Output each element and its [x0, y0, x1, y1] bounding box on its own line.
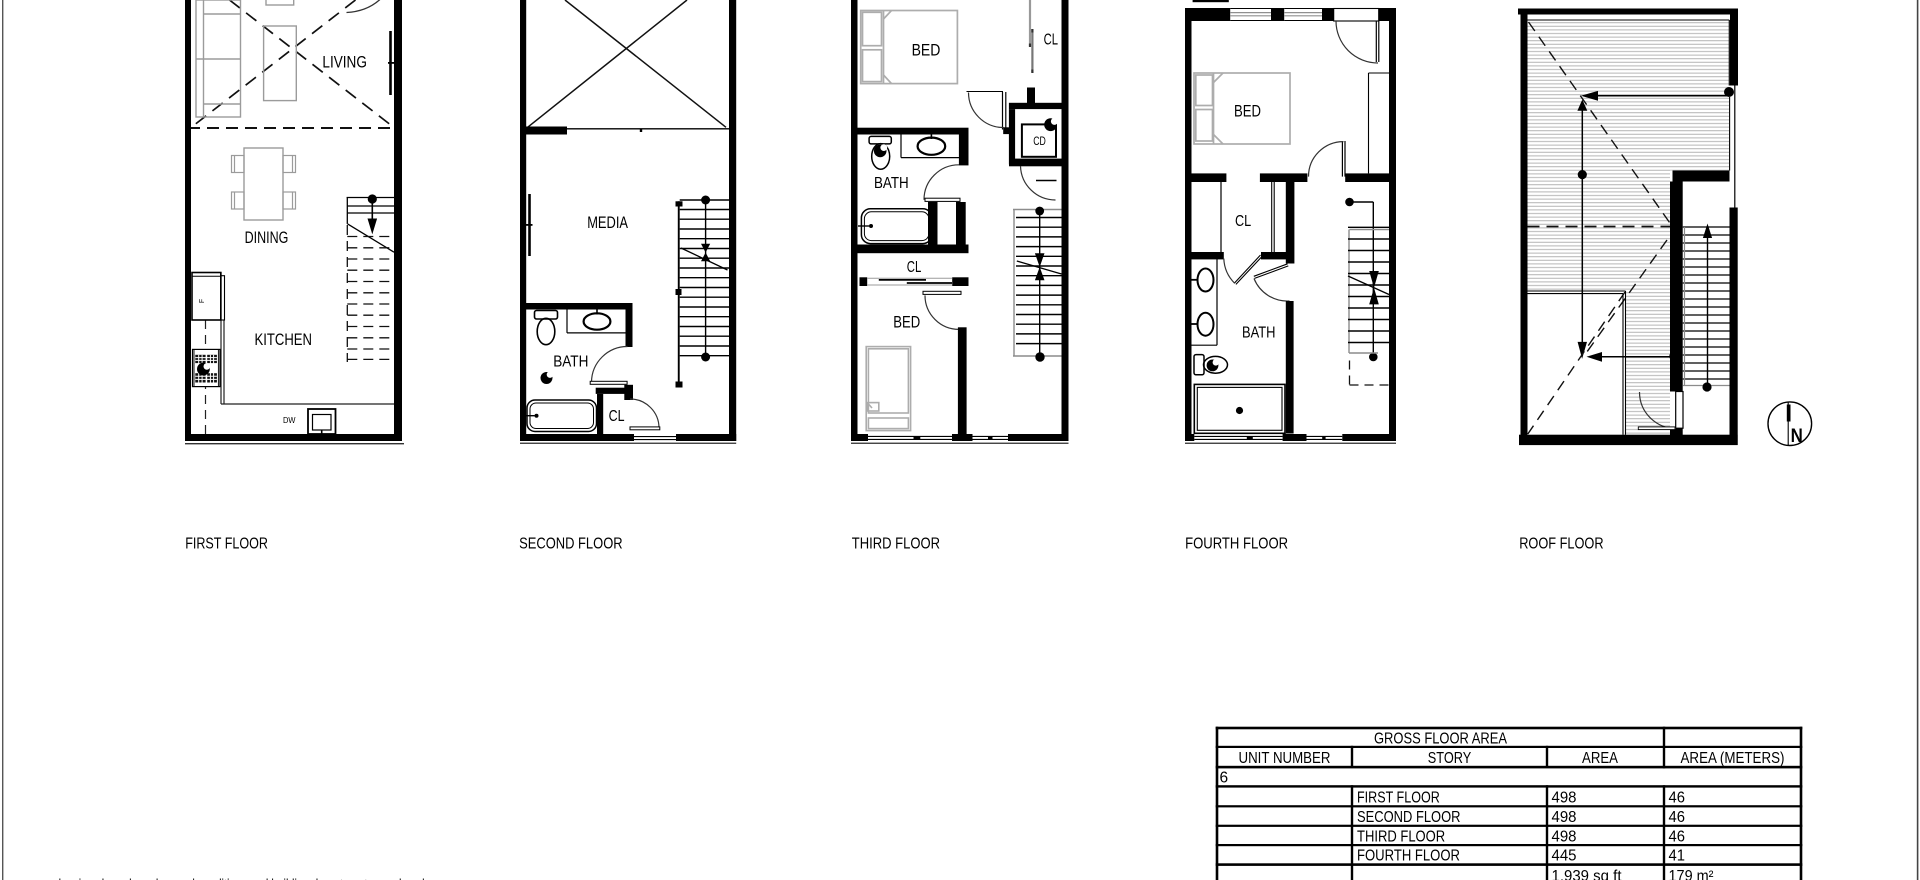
svg-text:BED: BED	[912, 41, 941, 59]
svg-text:THIRD FLOOR: THIRD FLOOR	[852, 535, 940, 552]
svg-text:AREA (METERS): AREA (METERS)	[1681, 750, 1785, 767]
svg-text:UNIT NUMBER: UNIT NUMBER	[1239, 750, 1331, 767]
svg-text:179 m²: 179 m²	[1669, 868, 1714, 880]
svg-text:DINING: DINING	[245, 229, 289, 247]
svg-text:46: 46	[1669, 809, 1686, 826]
svg-text:46: 46	[1669, 790, 1686, 807]
svg-text:CL: CL	[907, 259, 922, 276]
svg-text:MEDIA: MEDIA	[587, 214, 628, 232]
svg-text:498: 498	[1552, 828, 1577, 845]
svg-text:LIVING: LIVING	[322, 54, 367, 72]
svg-text:N: N	[1791, 425, 1803, 447]
svg-text:6: 6	[1220, 770, 1229, 787]
svg-text:STORY: STORY	[1428, 750, 1472, 767]
svg-text:FOURTH FLOOR: FOURTH FLOOR	[1185, 535, 1288, 552]
svg-text:FIRST FLOOR: FIRST FLOOR	[185, 535, 268, 552]
svg-text:445: 445	[1552, 848, 1577, 865]
svg-text:CL: CL	[1044, 32, 1059, 49]
svg-text:THIRD FLOOR: THIRD FLOOR	[1357, 828, 1445, 845]
svg-text:KITCHEN: KITCHEN	[255, 331, 313, 349]
svg-text:BATH: BATH	[553, 353, 588, 370]
svg-text:AREA: AREA	[1582, 750, 1619, 767]
svg-text:FOURTH FLOOR: FOURTH FLOOR	[1357, 848, 1460, 865]
svg-text:BATH: BATH	[1242, 324, 1276, 341]
svg-text:SECOND FLOOR: SECOND FLOOR	[1357, 809, 1461, 826]
svg-text:SECOND FLOOR: SECOND FLOOR	[519, 535, 623, 552]
svg-text:1,939 sq ft: 1,939 sq ft	[1552, 868, 1623, 880]
svg-text:BED: BED	[893, 314, 920, 332]
svg-text:FIRST FLOOR: FIRST FLOOR	[1357, 790, 1440, 807]
svg-text:ROOF FLOOR: ROOF FLOOR	[1519, 535, 1603, 552]
svg-text:CL: CL	[609, 408, 625, 425]
svg-text:CD: CD	[1033, 136, 1046, 148]
svg-text:F: F	[199, 299, 206, 303]
svg-text:41: 41	[1669, 848, 1686, 865]
svg-text:CL: CL	[1235, 213, 1251, 230]
svg-text:GROSS FLOOR AREA: GROSS FLOOR AREA	[1374, 731, 1508, 748]
svg-text:BED: BED	[1234, 102, 1261, 120]
svg-text:46: 46	[1669, 828, 1686, 845]
svg-text:DW: DW	[283, 415, 296, 425]
svg-text:498: 498	[1552, 809, 1577, 826]
svg-text:498: 498	[1552, 790, 1577, 807]
svg-text:BATH: BATH	[874, 175, 909, 192]
